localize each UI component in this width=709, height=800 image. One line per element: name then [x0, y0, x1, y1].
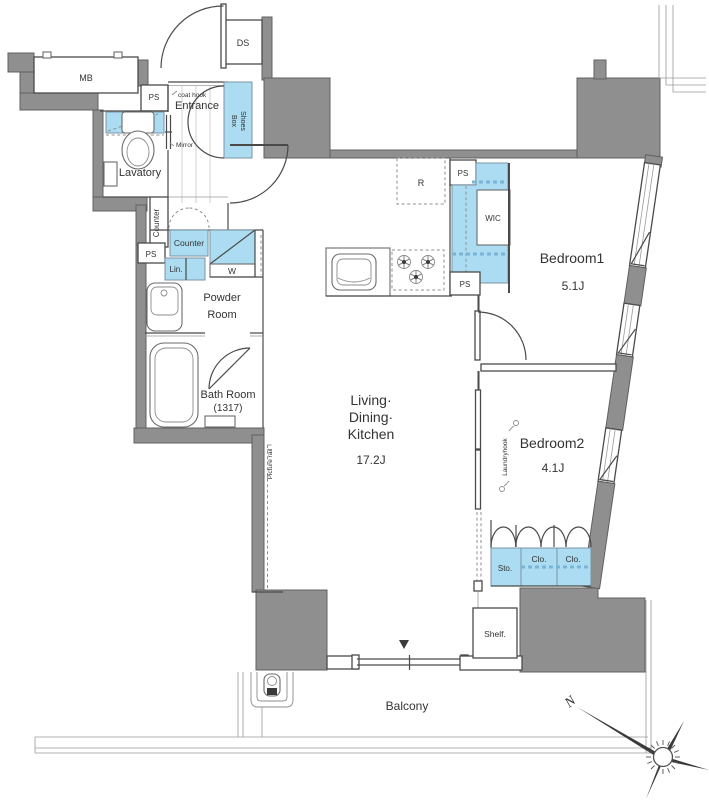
bedroom1-size-label: 5.1J [562, 279, 585, 293]
bedroom2-window-lower [598, 428, 622, 484]
ps-label: PS [149, 93, 160, 102]
neighbor-balcony-rails [659, 5, 706, 92]
front-door-swing [161, 6, 224, 68]
compass-north-label: N [562, 693, 580, 712]
ldk-label-3: Kitchen [348, 426, 395, 442]
coat-hook-label: coat hook [178, 92, 207, 99]
shelf-label: Shelf. [484, 629, 506, 639]
ldk-size-label: 17.2J [356, 453, 385, 467]
bifold-door-swing [169, 208, 189, 228]
folding-door-swing [516, 527, 541, 547]
lavatory-room: Lavatory [100, 111, 168, 197]
ldk-label-2: Dining· [349, 409, 393, 425]
balcony-faucet-icon [251, 672, 293, 707]
refrigerator-label: R [418, 178, 425, 188]
sliding-partition-panel[interactable] [476, 450, 481, 509]
bath-door-leaf[interactable] [209, 348, 250, 389]
stove [392, 250, 444, 290]
bedroom2-size-label: 4.1J [542, 461, 565, 475]
se-pillar [520, 588, 645, 672]
wic-label: WIC [485, 214, 501, 223]
floor-plan-svg: MB PS DS Shoes Box Entrance coat hook Mi [0, 0, 709, 800]
stove-burner-icon [398, 256, 411, 269]
ds-label: DS [237, 38, 250, 48]
bedroom2-window-upper [617, 303, 640, 357]
folding-door-swing [491, 527, 516, 547]
closet-label: Clo. [565, 554, 580, 564]
folding-door-swing [566, 527, 591, 547]
toilet-paper-holder [104, 162, 117, 186]
mb-hinge-icon [114, 52, 122, 58]
shoes-box-label-2: Box [230, 115, 237, 128]
entry-marker-icon [399, 640, 409, 649]
kitchen-area: R [326, 158, 452, 296]
washer-label: W [228, 266, 236, 276]
east-angled-wall [583, 155, 663, 589]
sliding-partition-panel[interactable] [476, 390, 481, 449]
bath-counter [205, 416, 235, 427]
wic-area: PS WIC PS [450, 160, 510, 295]
compass: N [562, 693, 709, 799]
ldk-label-1: Living· [350, 392, 391, 408]
laundry-hook-icon [514, 421, 519, 426]
ps-label: PS [460, 280, 471, 289]
powder-room: Powder Room [145, 283, 263, 336]
front-door-leaf[interactable] [221, 4, 226, 68]
bedroom-divider-wall [481, 364, 616, 371]
ps-label: PS [458, 169, 469, 178]
shoes-box-door-swing [188, 122, 224, 158]
lavatory-label: Lavatory [119, 167, 162, 179]
stove-burner-icon [410, 271, 423, 284]
counter-label: Counter [174, 238, 204, 248]
floor-plan-page: MB PS DS Shoes Box Entrance coat hook Mi [0, 0, 709, 800]
ldk-area: Living· Dining· Kitchen 17.2J Picture ra… [267, 392, 394, 588]
laundry-hook-label: Laundryhook [502, 437, 509, 475]
bath-size-label: (1317) [214, 403, 243, 414]
powder-room-label-1: Powder [203, 292, 241, 304]
mb-label: MB [79, 73, 93, 83]
partition-pocket-end [474, 581, 482, 591]
bath-label: Bath Room [200, 389, 255, 401]
bedroom2-label: Bedroom2 [520, 435, 585, 451]
closet-label: Clo. [531, 554, 546, 564]
powder-room-label-2: Room [207, 309, 236, 321]
balcony-label: Balcony [386, 699, 429, 713]
stove-burner-icon [422, 256, 435, 269]
picture-rail-label: Picture rail [267, 448, 274, 479]
mb-hinge-icon [43, 52, 51, 58]
hall-counter-label: Counter [152, 208, 161, 237]
linen-label: Lin. [170, 265, 183, 274]
bedroom1-window [630, 163, 661, 268]
entrance-label: Entrance [175, 100, 219, 112]
bedroom1-door-leaf[interactable] [475, 311, 480, 360]
mirror-label: Mirror [176, 142, 194, 149]
bathtub [150, 343, 198, 427]
storage-label: Sto. [498, 564, 512, 573]
shoes-box [224, 82, 252, 158]
ps-label: PS [146, 250, 157, 259]
closet-row: Sto. Clo. Clo. [491, 520, 591, 586]
bedroom1-door-swing [478, 312, 526, 360]
toilet-tank [122, 112, 154, 133]
laundry-hook-icon [500, 487, 505, 492]
bedroom1-label: Bedroom1 [540, 250, 605, 266]
bath-room: Bath Room (1317) [150, 343, 256, 427]
shoes-box-label-1: Shoes [239, 111, 246, 131]
bifold-door-swing [189, 208, 209, 228]
meter-box-area: MB [34, 52, 138, 93]
